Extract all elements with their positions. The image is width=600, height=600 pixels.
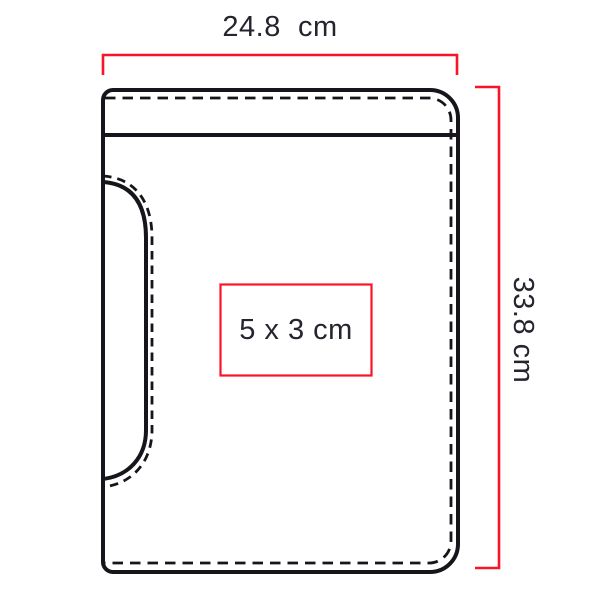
- handle-outline: [103, 182, 146, 479]
- height-dimension-bracket: [475, 87, 499, 568]
- height-dimension-label: 33.8 cm: [507, 265, 539, 395]
- dimension-diagram-canvas: 24.8 cm 33.8 cm 5 x 3 cm: [0, 0, 600, 600]
- width-dimension-label: 24.8 cm: [102, 11, 458, 44]
- print-area-label: 5 x 3 cm: [220, 284, 372, 376]
- width-dimension-bracket: [103, 55, 457, 75]
